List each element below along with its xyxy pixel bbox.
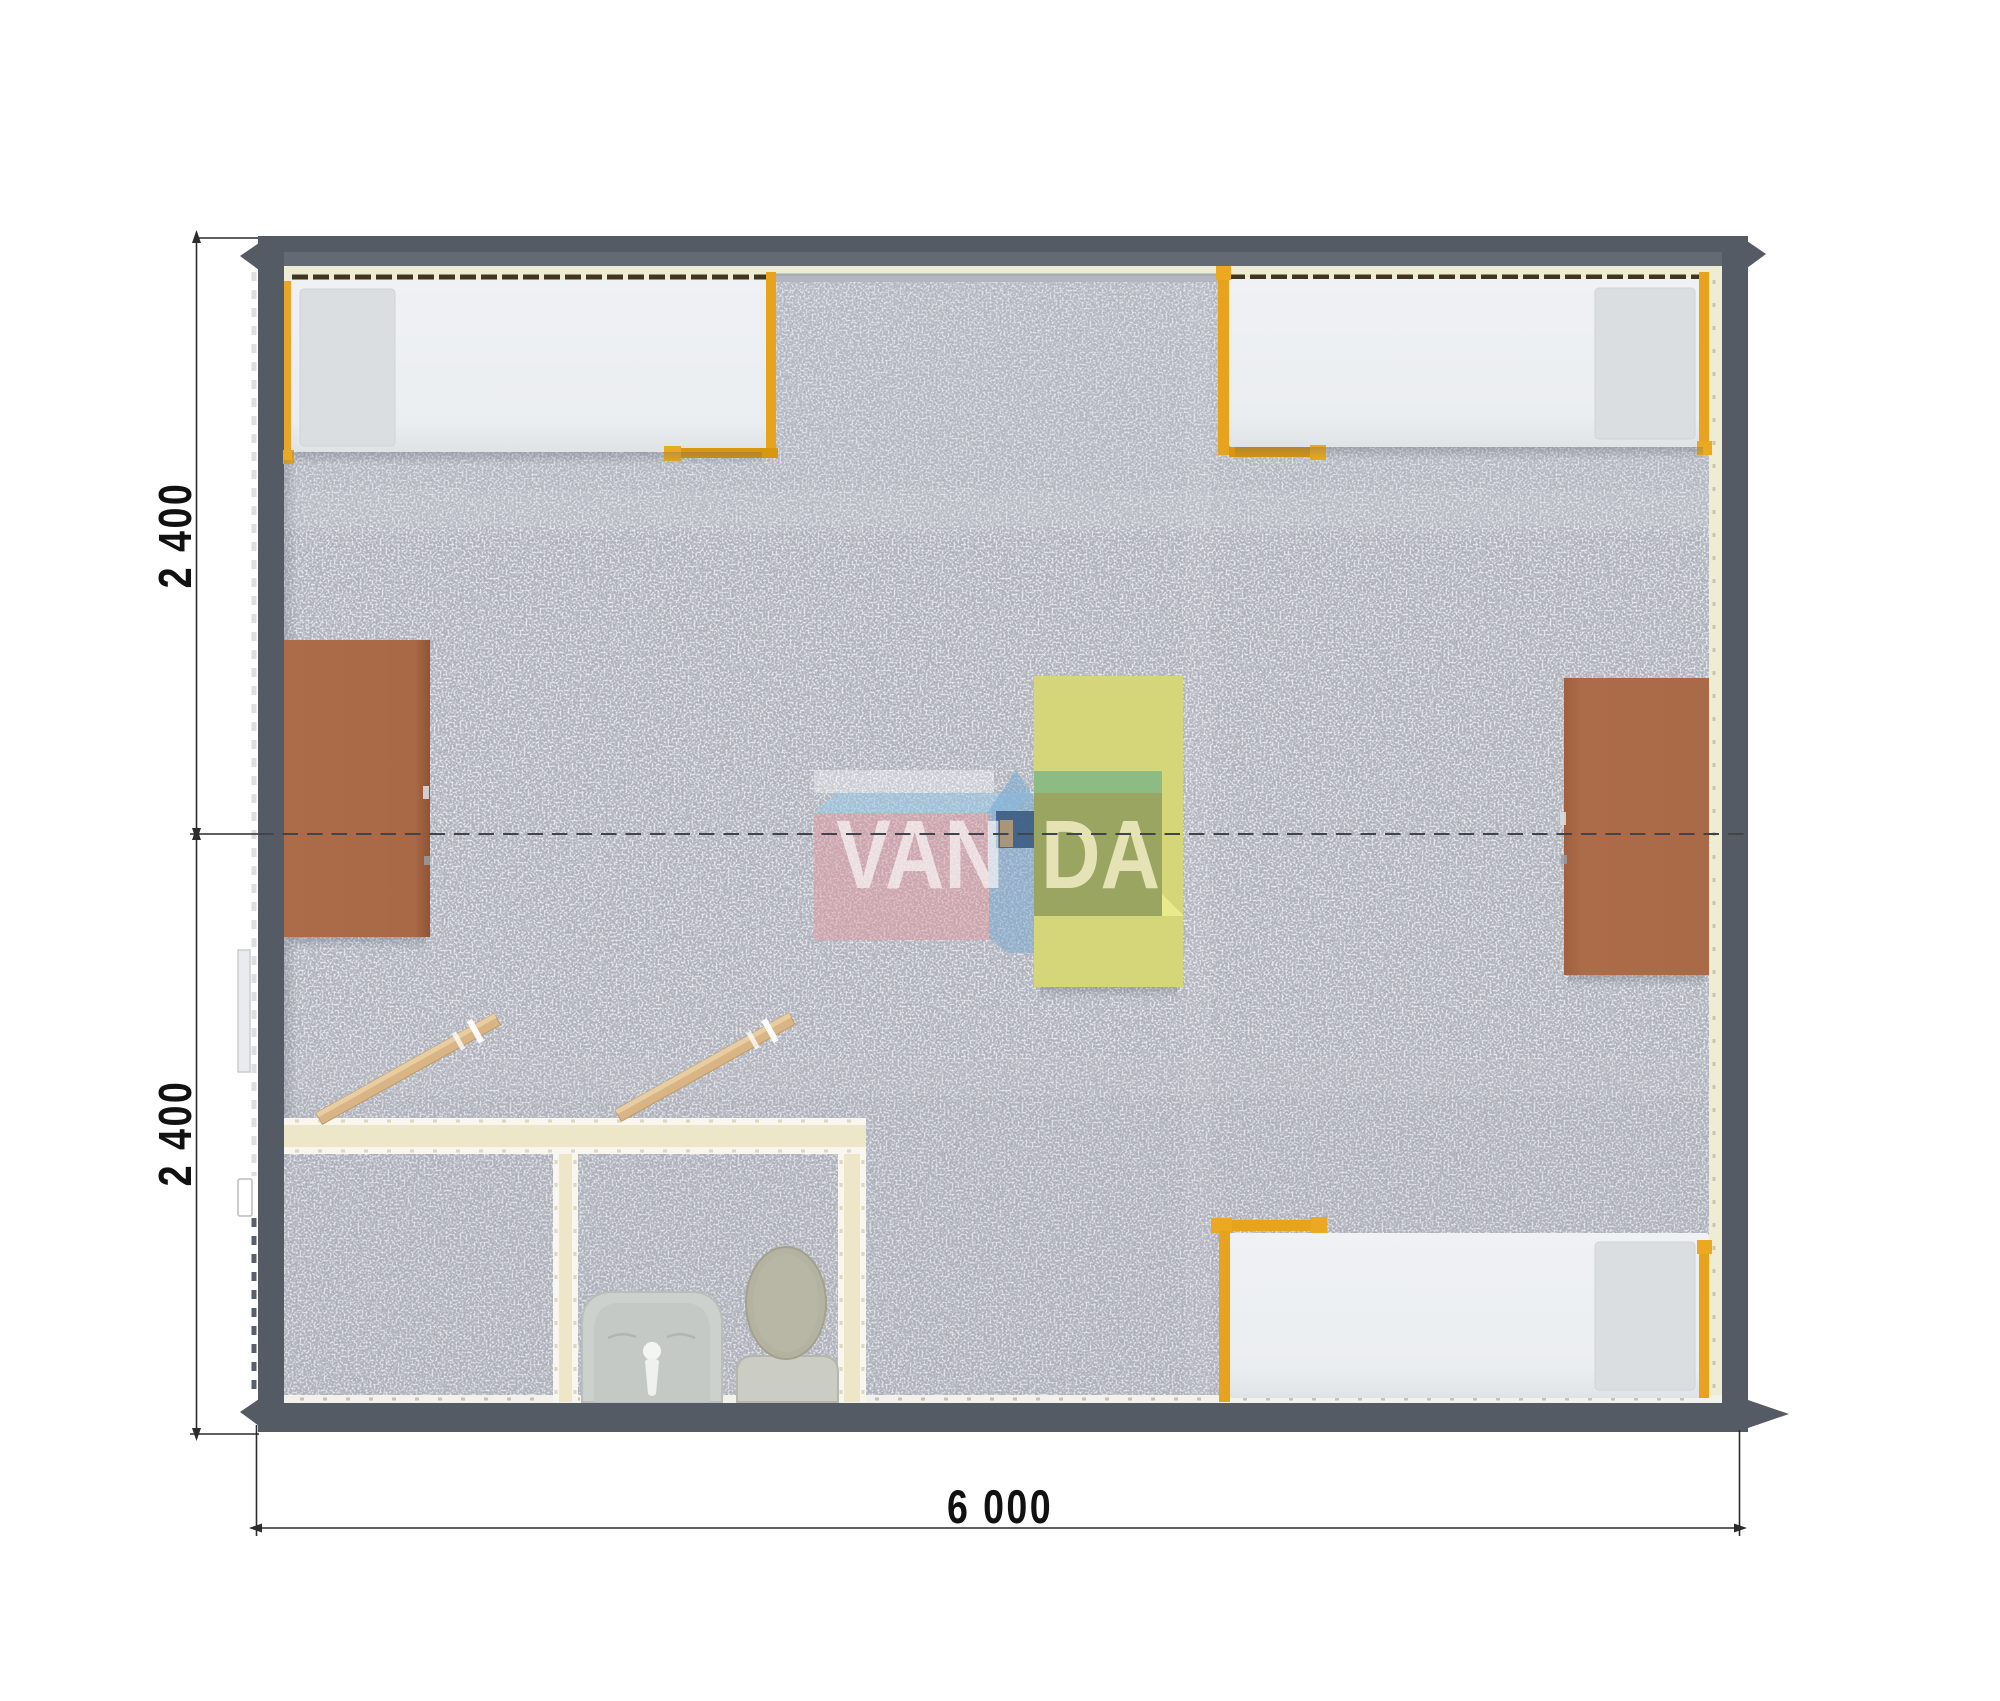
svg-text:2 400: 2 400 [149,1080,200,1187]
svg-text:VAN: VAN [836,802,1004,910]
svg-text:2 400: 2 400 [149,482,200,589]
svg-text:6 000: 6 000 [947,1481,1053,1534]
svg-text:DA: DA [1041,802,1160,910]
